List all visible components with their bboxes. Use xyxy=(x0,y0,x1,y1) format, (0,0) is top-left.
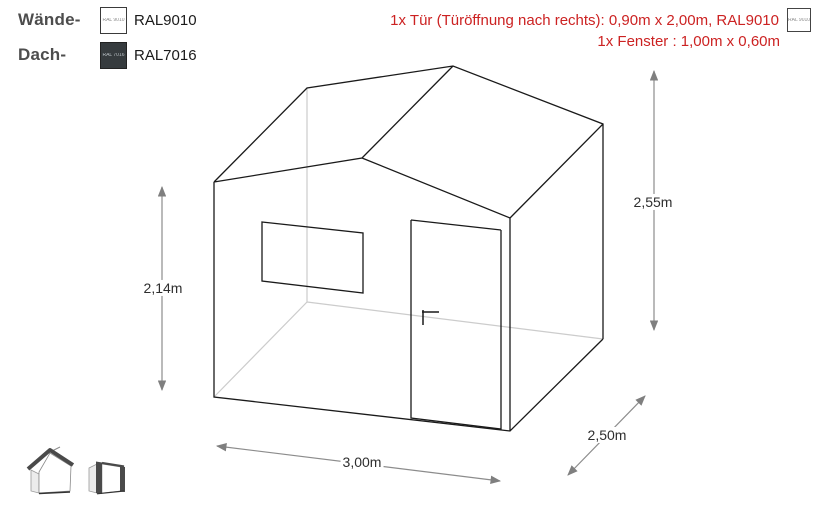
ridge-height-dimension: 2,55m xyxy=(632,194,675,210)
shed-3d-drawing xyxy=(0,0,816,520)
side-depth-dimension: 2,50m xyxy=(586,427,629,443)
shed-outline xyxy=(214,66,603,431)
front-width-dimension: 3,00m xyxy=(341,454,384,470)
hidden-edges xyxy=(214,88,603,397)
pent-roof-view-icon[interactable] xyxy=(89,462,125,495)
wall-height-dimension: 2,14m xyxy=(142,280,185,296)
gable-roof-view-icon[interactable] xyxy=(28,447,73,494)
window-outline xyxy=(262,222,363,293)
